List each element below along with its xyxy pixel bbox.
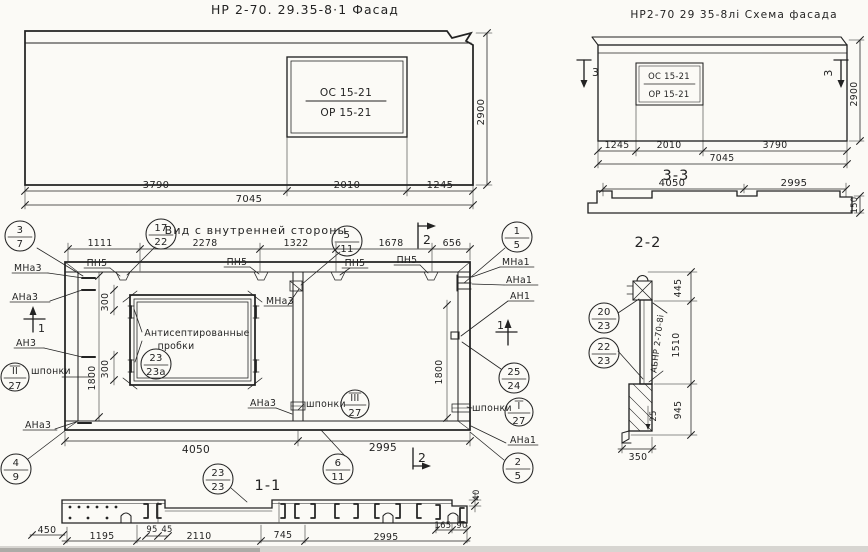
- label-ana3: АНа3: [250, 398, 276, 409]
- dim-1510: 1510: [671, 333, 682, 358]
- ref-bubble-25-24: 25 24: [499, 363, 529, 393]
- label-ana1: АНа1: [510, 435, 536, 446]
- label-ana1: АНа1: [506, 275, 532, 286]
- opening-mark-bottom: ОР 15-21: [648, 89, 689, 99]
- svg-text:3: 3: [822, 69, 835, 76]
- svg-text:1: 1: [38, 322, 45, 335]
- label-mna1: МНа1: [502, 257, 530, 268]
- ref-bubble-23-23: 23 23: [203, 464, 233, 494]
- opening-mark-top: ОС 15-21: [320, 87, 372, 99]
- dim-2010: 2010: [334, 180, 361, 191]
- svg-text:27: 27: [8, 381, 21, 392]
- dim-3790: 3790: [763, 140, 788, 151]
- dim-4050: 4050: [182, 444, 210, 456]
- svg-text:23: 23: [597, 356, 610, 367]
- label-ana3: АНа3: [12, 292, 38, 303]
- dim-450: 450: [38, 525, 57, 536]
- dim-1800: 1800: [434, 360, 445, 385]
- ref-bubble-4-9: 4 9: [1, 454, 31, 484]
- opening-mark-bottom: ОР 15-21: [320, 107, 371, 119]
- dim-2900: 2900: [476, 99, 487, 126]
- ref-bubble-3-7: 3 7: [5, 221, 35, 251]
- svg-text:3: 3: [17, 225, 24, 236]
- svg-text:9: 9: [13, 472, 20, 483]
- svg-text:23: 23: [211, 482, 224, 493]
- label-pn5: ПН5: [397, 255, 418, 266]
- svg-text:6: 6: [335, 458, 342, 469]
- label-shponki: шпонки: [31, 366, 71, 377]
- svg-text:2: 2: [515, 457, 522, 468]
- section-marker-3-right: 3: [822, 60, 848, 88]
- plugs-note-line1: Антисептированные: [144, 328, 249, 339]
- section-2-2: 2-2 20 23 22 23 АБНР 2-70-8і 1510: [589, 235, 697, 463]
- inner-side-view: Вид с внутренней стороны: [1, 219, 538, 484]
- dim-2278: 2278: [193, 238, 218, 249]
- dim-165: 165: [435, 520, 452, 530]
- ref-bubble-20-23: 20 23: [589, 303, 619, 333]
- dim-350: 350: [629, 452, 648, 463]
- facade-view: НР 2-70. 29.35-8·1 Фасад ОС 15-21 ОР 15-…: [22, 2, 492, 209]
- svg-text:23: 23: [149, 353, 162, 364]
- section-marker-1-right: 1: [496, 319, 517, 345]
- dim-45: 45: [161, 524, 172, 534]
- svg-text:23: 23: [211, 468, 224, 479]
- section-marker-1-left: 1: [24, 306, 45, 335]
- ref-bubble-6-11: 6 11: [323, 454, 353, 484]
- section-3-3-profile: [588, 191, 852, 213]
- ref-bubble-2-5: 2 5: [503, 453, 533, 483]
- dim-1322: 1322: [284, 238, 309, 249]
- section-2-2-title: 2-2: [635, 235, 662, 251]
- dim-95: 95: [146, 524, 157, 534]
- drawing-sheet: НР 2-70. 29.35-8·1 Фасад ОС 15-21 ОР 15-…: [0, 0, 868, 552]
- svg-text:I: I: [517, 401, 520, 412]
- label-an1: АН1: [510, 291, 530, 302]
- dim-745: 745: [274, 530, 293, 541]
- dim-2110: 2110: [187, 531, 212, 542]
- svg-text:1: 1: [497, 319, 504, 332]
- facade-panel-outline: [25, 31, 473, 185]
- svg-text:2: 2: [423, 232, 431, 247]
- technical-drawing: НР 2-70. 29.35-8·1 Фасад ОС 15-21 ОР 15-…: [0, 0, 868, 552]
- svg-text:17: 17: [154, 223, 167, 234]
- label-pn5: ПН5: [87, 258, 108, 269]
- label-shponki: шпонки: [306, 399, 346, 410]
- dim-25: 25: [648, 410, 658, 421]
- svg-text:22: 22: [597, 342, 610, 353]
- scan-edge-smudge: [0, 548, 260, 552]
- dim-2995: 2995: [781, 178, 808, 189]
- dim-2995: 2995: [374, 532, 399, 543]
- svg-text:7: 7: [17, 239, 24, 250]
- svg-text:5: 5: [344, 230, 351, 241]
- dim-2995: 2995: [369, 442, 397, 454]
- label-mna3: МНа3: [266, 296, 294, 307]
- lifting-loop: [637, 276, 648, 282]
- section-marker-2-bottom: 2: [413, 448, 431, 470]
- dim-90: 90: [456, 520, 467, 530]
- svg-text:5: 5: [515, 471, 522, 482]
- dim-3790: 3790: [143, 180, 170, 191]
- dim-1195: 1195: [90, 531, 115, 542]
- svg-text:24: 24: [507, 381, 520, 392]
- ref-bubble-23-23a: 23 23а: [141, 349, 171, 379]
- antiseptic-plug: [253, 360, 259, 372]
- svg-text:1: 1: [514, 226, 521, 237]
- dim-4050: 4050: [659, 178, 686, 189]
- svg-text:22: 22: [154, 237, 167, 248]
- svg-text:III: III: [350, 393, 359, 404]
- svg-text:11: 11: [340, 244, 353, 255]
- dim-445: 445: [673, 279, 684, 298]
- dim-300: 300: [100, 360, 111, 379]
- label-an3: АН3: [16, 338, 36, 349]
- opening-mark-top: ОС 15-21: [648, 71, 690, 81]
- svg-text:27: 27: [348, 408, 361, 419]
- antiseptic-plug: [128, 306, 134, 318]
- label-ana3: АНа3: [25, 420, 51, 431]
- svg-text:23а: 23а: [146, 367, 166, 378]
- ref-bubble-II-27: II 27: [1, 363, 29, 392]
- dim-40: 40: [471, 489, 481, 500]
- label-pn5: ПН5: [227, 257, 248, 268]
- svg-text:25: 25: [507, 367, 520, 378]
- label-pn5: ПН5: [345, 258, 366, 269]
- svg-text:27: 27: [512, 416, 525, 427]
- svg-text:2: 2: [418, 450, 426, 465]
- dim-1800: 1800: [87, 366, 98, 391]
- stamp-text: АБНР 2-70-8і: [648, 314, 665, 374]
- section-marker-3-left: 3: [577, 60, 599, 88]
- section-marker-2-top: 2: [418, 223, 436, 249]
- schema-panel-outline: [598, 45, 847, 141]
- section-3-3: 3-3 4050 2995 150: [588, 168, 864, 216]
- dim-300: 300: [100, 293, 111, 312]
- dim-1111: 1111: [88, 238, 113, 249]
- antiseptic-plug: [253, 306, 259, 318]
- ref-bubble-1-5: 1 5: [502, 222, 532, 252]
- svg-text:5: 5: [514, 240, 521, 251]
- dim-1245: 1245: [605, 140, 630, 151]
- svg-text:4: 4: [13, 458, 20, 469]
- dim-1678: 1678: [379, 238, 404, 249]
- dim-7045: 7045: [236, 194, 263, 205]
- svg-text:II: II: [12, 366, 18, 377]
- antiseptic-plug: [128, 360, 134, 372]
- schema-title: НР2-70 29 35-8лі Схема фасада: [630, 9, 837, 21]
- dim-945: 945: [673, 401, 684, 420]
- svg-text:11: 11: [331, 472, 344, 483]
- svg-text:20: 20: [597, 307, 610, 318]
- section-1-1-title: 1-1: [255, 478, 282, 494]
- dim-656: 656: [443, 238, 462, 249]
- svg-text:23: 23: [597, 321, 610, 332]
- section-1-1: 1-1 23 23 450: [29, 464, 481, 544]
- svg-text:3: 3: [592, 66, 599, 79]
- dim-2900: 2900: [849, 82, 860, 107]
- dim-1245: 1245: [427, 180, 454, 191]
- label-mna3: МНа3: [14, 263, 42, 274]
- dim-7045: 7045: [710, 153, 735, 164]
- ref-bubble-22-23: 22 23: [589, 338, 619, 368]
- facade-schema-view: НР2-70 29 35-8лі Схема фасада ОС 15-21 О…: [577, 9, 864, 168]
- facade-title: НР 2-70. 29.35-8·1 Фасад: [211, 2, 399, 17]
- dim-150: 150: [849, 197, 859, 214]
- dim-2010: 2010: [657, 140, 682, 151]
- ref-bubble-5-11: 5 11: [332, 226, 362, 256]
- inner-view-title: Вид с внутренней стороны: [165, 224, 348, 237]
